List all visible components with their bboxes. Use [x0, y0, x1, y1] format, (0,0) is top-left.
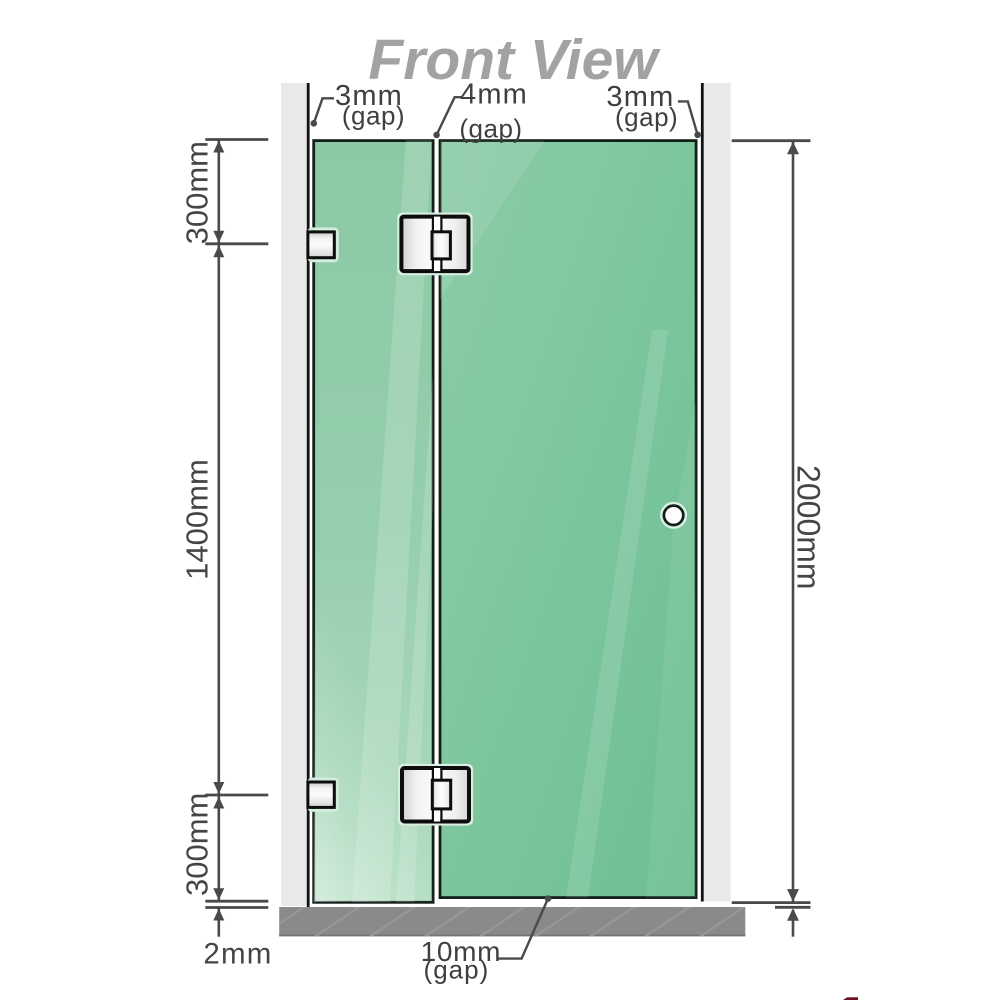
svg-text:(gap): (gap) — [615, 102, 678, 132]
svg-text:(gap): (gap) — [342, 101, 405, 131]
svg-text:2mm: 2mm — [203, 938, 272, 971]
svg-text:(gap): (gap) — [459, 114, 522, 144]
svg-text:300mm: 300mm — [180, 141, 215, 244]
svg-text:2000mm: 2000mm — [791, 465, 827, 590]
svg-text:4mm: 4mm — [460, 79, 528, 111]
svg-text:300mm: 300mm — [180, 793, 215, 896]
svg-text:1400mm: 1400mm — [180, 459, 215, 580]
svg-text:(gap): (gap) — [424, 955, 490, 985]
